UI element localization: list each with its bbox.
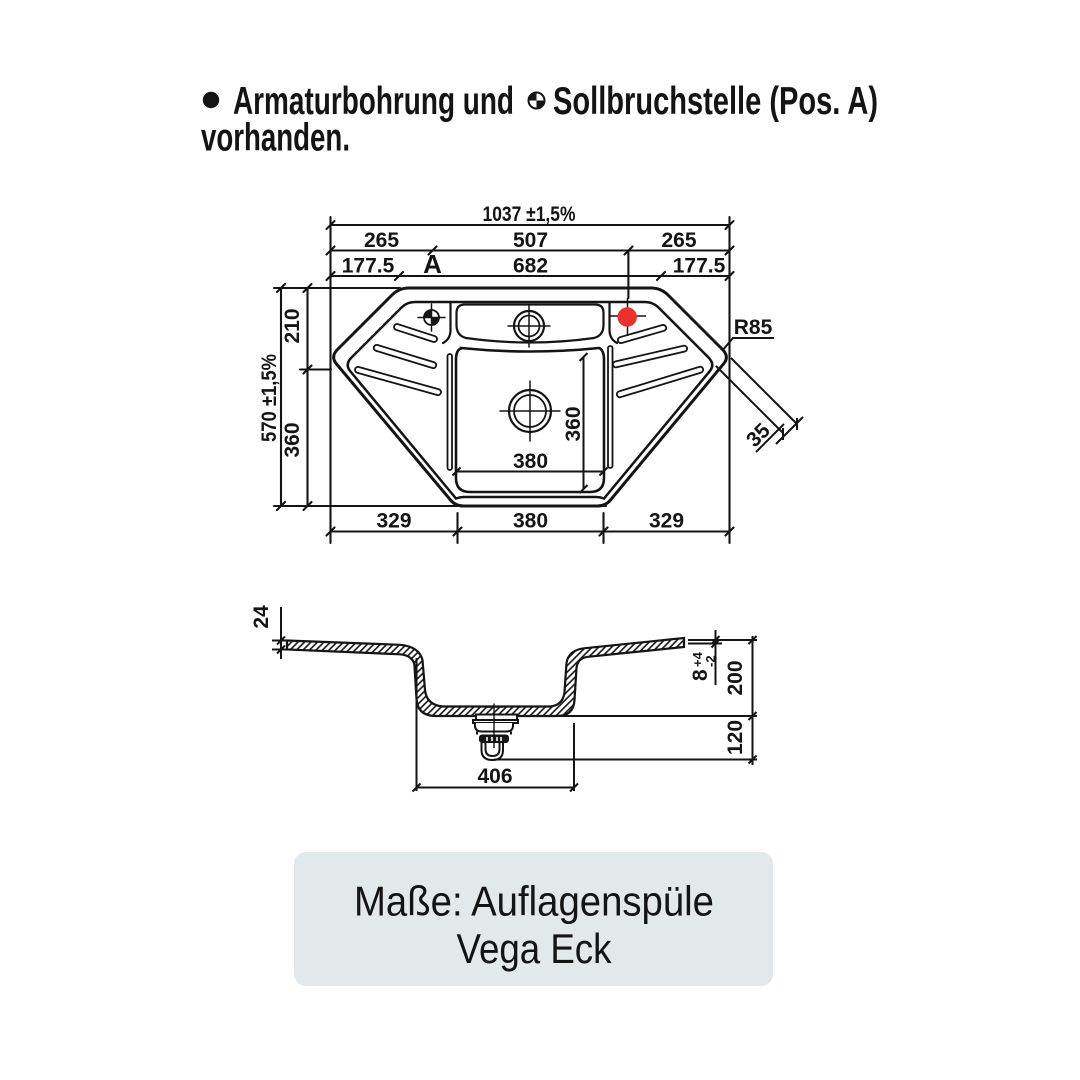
svg-text:406: 406: [477, 765, 512, 788]
svg-text:35: 35: [742, 419, 775, 452]
svg-text:120: 120: [724, 720, 747, 755]
svg-text:8: 8: [689, 669, 712, 681]
svg-text:-2: -2: [703, 655, 718, 667]
svg-text:682: 682: [513, 255, 548, 278]
svg-text:A: A: [423, 249, 442, 279]
svg-text:360: 360: [562, 406, 585, 441]
svg-text:1037 ±1,5%: 1037 ±1,5%: [483, 203, 576, 226]
svg-text:329: 329: [376, 510, 411, 533]
svg-text:570 ±1,5%: 570 ±1,5%: [258, 354, 281, 442]
svg-text:177.5: 177.5: [342, 255, 395, 278]
svg-text:24: 24: [250, 605, 273, 629]
svg-text:177.5: 177.5: [673, 255, 726, 278]
svg-text:Vega Eck: Vega Eck: [457, 925, 613, 972]
svg-text:Sollbruchstelle (Pos. A): Sollbruchstelle (Pos. A): [553, 80, 878, 123]
svg-text:265: 265: [364, 229, 399, 252]
svg-text:R85: R85: [734, 316, 773, 339]
svg-text:380: 380: [513, 450, 548, 473]
svg-text:200: 200: [724, 660, 747, 695]
svg-text:265: 265: [661, 229, 696, 252]
svg-text:380: 380: [513, 510, 548, 533]
svg-text:210: 210: [281, 308, 304, 343]
svg-text:360: 360: [281, 422, 304, 457]
svg-text:vorhanden.: vorhanden.: [201, 117, 350, 160]
svg-text:329: 329: [649, 510, 684, 533]
svg-text:Maße: Auflagenspüle: Maße: Auflagenspüle: [354, 878, 714, 925]
svg-text:507: 507: [513, 229, 548, 252]
